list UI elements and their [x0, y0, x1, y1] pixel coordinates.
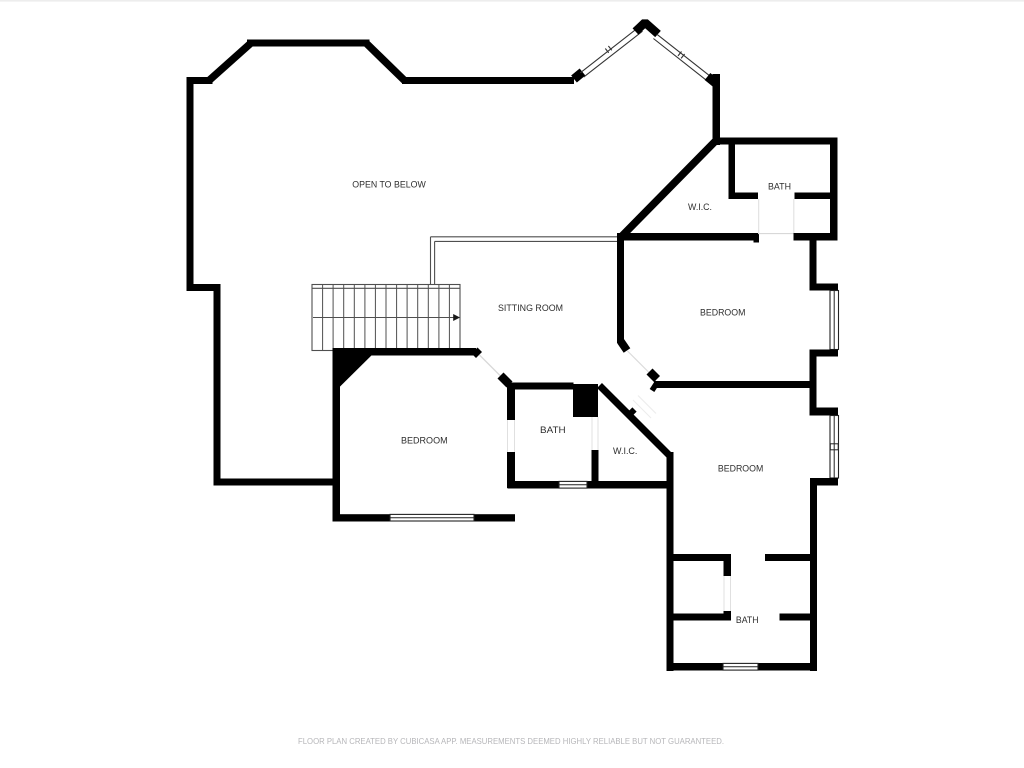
svg-text:BEDROOM: BEDROOM	[718, 464, 763, 475]
svg-text:BEDROOM: BEDROOM	[401, 435, 448, 446]
svg-text:BEDROOM: BEDROOM	[700, 307, 745, 318]
svg-text:OPEN TO BELOW: OPEN TO BELOW	[352, 179, 426, 190]
svg-text:FLOOR PLAN CREATED BY CUBICASA: FLOOR PLAN CREATED BY CUBICASA APP. MEAS…	[298, 737, 724, 746]
svg-text:W.I.C.: W.I.C.	[688, 202, 712, 213]
svg-text:BATH: BATH	[736, 615, 759, 626]
svg-text:BATH: BATH	[768, 182, 791, 193]
svg-text:W.I.C.: W.I.C.	[613, 446, 637, 457]
svg-text:SITTING ROOM: SITTING ROOM	[498, 303, 563, 314]
svg-text:BATH: BATH	[540, 425, 566, 436]
